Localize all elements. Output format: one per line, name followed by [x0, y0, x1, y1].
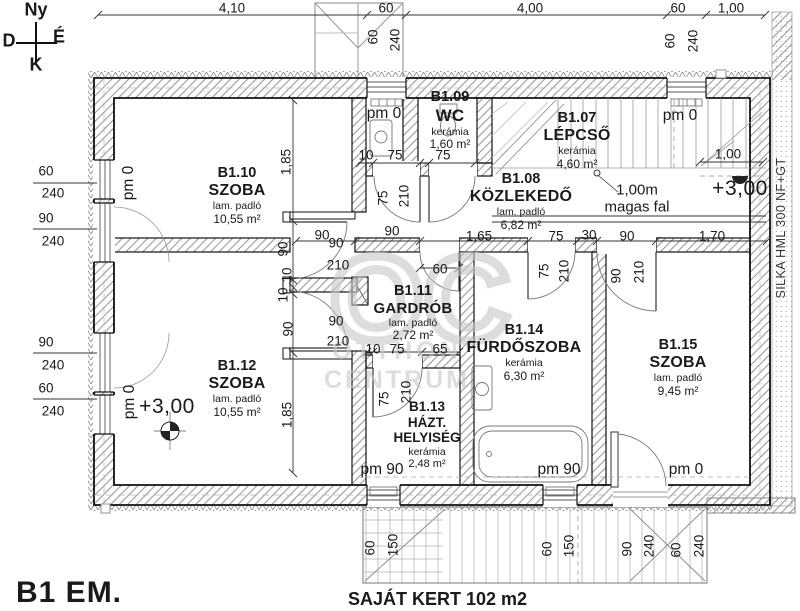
- dim-label: 1,00: [715, 147, 741, 162]
- dim-label: 4,00: [517, 1, 543, 16]
- dim-label: 90: [328, 236, 343, 251]
- room-label-b115: B1.15 SZOBA lam. padló 9,45 m²: [650, 337, 707, 398]
- dim-label: 10: [365, 342, 380, 357]
- stairs: [488, 98, 766, 174]
- dim-label: 210: [399, 381, 414, 404]
- wall-height-note: magas fal: [604, 199, 669, 216]
- dim-label: 210: [397, 185, 412, 208]
- compass-label-bottom: K: [30, 55, 43, 76]
- dim-label: 240: [42, 186, 65, 201]
- level-label: +3,00: [712, 177, 768, 201]
- room-label-b114: B1.14 FÜRDŐSZOBA kerámia 6,30 m²: [467, 322, 582, 383]
- dim-label: 240: [42, 358, 65, 373]
- parapet-label: pm 0: [120, 166, 138, 200]
- dim-label: 1,85: [280, 402, 295, 428]
- dim-label: 60: [38, 381, 53, 396]
- parapet-label: pm 0: [121, 385, 139, 419]
- dim-label: 30: [581, 228, 596, 243]
- dim-label: 240: [642, 535, 657, 558]
- dim-label: 60: [366, 29, 381, 44]
- dim-label: 60: [669, 542, 684, 557]
- wall-height-note: 1,00m: [616, 182, 658, 199]
- dim-label: 1,00: [718, 1, 744, 16]
- floorplan-page: OC OTTHON CENTRUM B1.09 WC kerámia 1,60 …: [0, 0, 800, 611]
- dim-label: 10: [276, 287, 291, 302]
- wall-material-note: SILKA HML 300 NF+GT: [774, 158, 788, 299]
- dim-label: 75: [548, 229, 563, 244]
- dim-label: 90: [619, 229, 634, 244]
- dim-label: 4,10: [219, 1, 245, 16]
- dim-label: 90: [281, 321, 296, 336]
- dim-label: 10: [358, 148, 373, 163]
- compass-label-left: D: [3, 31, 16, 52]
- dim-label: 90: [620, 541, 635, 556]
- dim-label: 210: [327, 258, 350, 273]
- dim-label: 10: [280, 267, 295, 282]
- parapet-label: pm 0: [663, 107, 697, 125]
- dim-label: 240: [42, 234, 65, 249]
- dim-label: 90: [384, 224, 399, 239]
- dim-label: 60: [363, 540, 378, 555]
- dim-label: 60: [663, 33, 678, 48]
- dim-label: 90: [276, 241, 291, 256]
- dim-label: 210: [327, 334, 350, 349]
- dim-label: 75: [377, 391, 392, 406]
- parapet-label: pm 90: [360, 461, 403, 479]
- room-label-b112: B1.12 SZOBA lam. padló 10,55 m²: [209, 358, 266, 419]
- compass-label-right: É: [53, 27, 65, 48]
- dim-label: 90: [38, 211, 53, 226]
- dim-label: 1,85: [279, 149, 294, 175]
- dim-label: 75: [389, 342, 404, 357]
- dim-label: 1,65: [466, 229, 492, 244]
- level-label: +3,00: [139, 395, 195, 419]
- dim-label: 90: [38, 335, 53, 350]
- compass-label-top: Ny: [24, 0, 47, 21]
- parapet-label: pm 90: [537, 461, 580, 479]
- dim-label: 90: [328, 314, 343, 329]
- dim-label: 90: [314, 228, 329, 243]
- room-label-b107: B1.07 LÉPCSŐ kerámia 4,60 m²: [544, 110, 611, 171]
- garden-note: SAJÁT KERT 102 m2: [348, 589, 527, 610]
- dim-label: 75: [376, 190, 391, 205]
- dim-label: 150: [562, 535, 577, 558]
- dim-label: 210: [632, 261, 647, 284]
- dim-label: 60: [670, 1, 685, 16]
- room-label-b109: B1.09 WC kerámia 1,60 m²: [430, 89, 471, 152]
- dim-label: 60: [540, 541, 555, 556]
- dim-label: 240: [42, 404, 65, 419]
- dim-label: 75: [387, 148, 402, 163]
- dim-label: 60: [432, 262, 447, 277]
- dim-label: 210: [557, 260, 572, 283]
- dim-label: 240: [686, 30, 701, 53]
- dim-label: 60: [378, 1, 393, 16]
- room-label-b110: B1.10 SZOBA lam. padló 10,55 m²: [209, 165, 266, 226]
- room-label-b113: B1.13 HÁZT. HELYISÉG kerámia 2,48 m²: [383, 399, 471, 471]
- dim-label: 1,70: [699, 229, 725, 244]
- dim-label: 75: [537, 263, 552, 278]
- dim-label: 75: [435, 148, 450, 163]
- dim-label: 60: [38, 164, 53, 179]
- dim-label: 90: [609, 268, 624, 283]
- dim-label: 150: [386, 534, 401, 557]
- parapet-label: pm 0: [669, 461, 703, 479]
- parapet-label: pm 0: [367, 105, 401, 123]
- drawing-title: B1 EM.: [16, 576, 122, 610]
- dim-label: 65: [432, 342, 447, 357]
- dim-label: 240: [692, 535, 707, 558]
- room-label-b108: B1.08 KÖZLEKEDŐ lam. padló 6,82 m²: [470, 171, 572, 232]
- dim-label: 240: [388, 29, 403, 52]
- terrace: [363, 498, 795, 583]
- svg-text:CENTRUM: CENTRUM: [324, 366, 470, 394]
- room-label-b111: B1.11 GARDRÓB lam. padló 2,72 m²: [374, 283, 453, 343]
